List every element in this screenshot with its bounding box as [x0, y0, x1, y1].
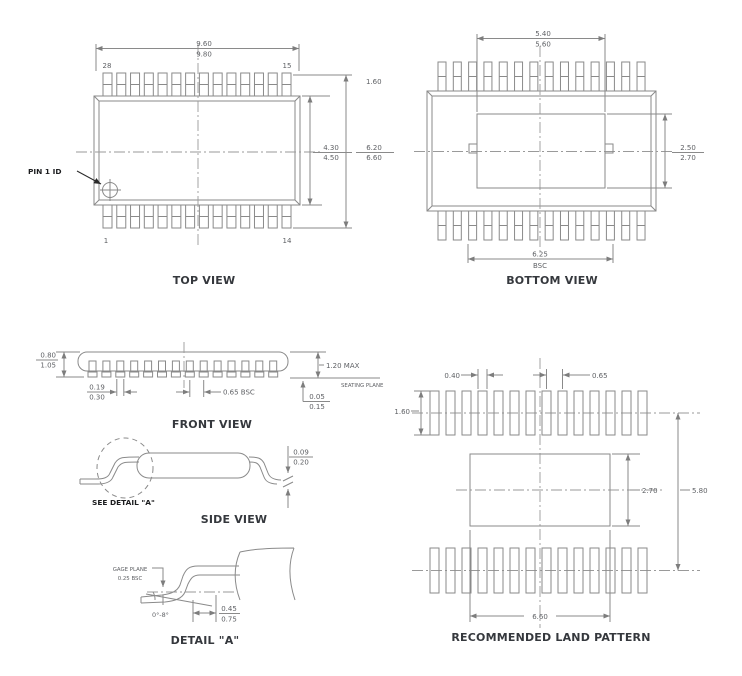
- front-view-leads: [88, 361, 278, 377]
- center-pad-width-dim: 6.60: [532, 613, 548, 621]
- pitch-extension-lines: [190, 380, 204, 397]
- standoff-dim-b: 0.15: [309, 403, 325, 411]
- span-dim-b: BSC: [533, 262, 547, 270]
- package-outline-drawing: PIN 1 ID 28 15 1 14 9.60 9.80 4.30 4.50 …: [0, 0, 742, 676]
- land-pad-width-extension-lines: [478, 369, 487, 389]
- package-body-inner: [99, 101, 295, 200]
- front-body-dim-b: 1.05: [40, 362, 56, 370]
- bottom-corner-bevels: [427, 91, 656, 211]
- foot-length-dim-a: 0.45: [221, 605, 237, 613]
- foot-length-dim-b: 0.75: [221, 616, 237, 624]
- pin1-id-label: PIN 1 ID: [28, 167, 62, 176]
- angle-dim: 0°-8°: [152, 611, 169, 619]
- land-overall-dim: 5.80: [692, 487, 708, 495]
- gage-plane-label: GAGE PLANE: [113, 567, 148, 573]
- land-pads-top-row: [430, 391, 647, 435]
- package-body-outline: [94, 96, 300, 205]
- gage-leader: [152, 568, 163, 578]
- lead-thickness-dim-a: 0.09: [293, 449, 309, 457]
- top-view: PIN 1 ID 28 15 1 14 9.60 9.80 4.30 4.50 …: [28, 40, 394, 287]
- land-pitch-dim: 0.65: [592, 372, 608, 380]
- front-body-dim-a: 0.80: [40, 352, 56, 360]
- pitch-dim: 0.65 BSC: [223, 389, 255, 397]
- front-view: 0.80 1.05 1.20 MAX SEATING PLANE 0.05 0.…: [36, 342, 384, 431]
- top-view-pins-upper: [103, 73, 291, 96]
- span-dim-a: 6.25: [532, 251, 548, 259]
- land-pads-bottom-row: [430, 548, 647, 593]
- width-dim-b: 9.80: [196, 51, 212, 59]
- pin-number-28: 28: [103, 62, 112, 70]
- body-height-dim-b: 4.50: [323, 154, 339, 162]
- pin1-leader-arrow: [77, 171, 101, 184]
- lead-length-dim: 1.60: [366, 78, 382, 86]
- body-corner-bevels: [94, 96, 300, 205]
- foot-length-extension-lines: [193, 595, 216, 622]
- gage-offset-dim: 0.25 BSC: [118, 576, 143, 582]
- top-view-title: TOP VIEW: [173, 274, 236, 287]
- lead-width-dim-b: 0.30: [89, 394, 105, 402]
- exposed-pad-outline: [477, 114, 605, 188]
- center-pad-height-dim: 2.70: [642, 487, 658, 495]
- detail-a-view: GAGE PLANE 0.25 BSC 0°-8° 0.45 0.75 DETA…: [113, 548, 295, 647]
- side-lead-left: [80, 457, 139, 484]
- pad-height-dim-a: 2.50: [680, 144, 696, 152]
- bottom-view-pins-upper: [438, 62, 645, 91]
- bottom-body-outline: [427, 91, 656, 211]
- pad-width-dim-b: 5.60: [535, 41, 551, 49]
- bottom-view-pins-lower: [438, 211, 645, 240]
- pad-height-extension-lines: [607, 114, 672, 188]
- drawing-canvas: PIN 1 ID 28 15 1 14 9.60 9.80 4.30 4.50 …: [0, 0, 742, 676]
- lead-thickness-dim-b: 0.20: [293, 459, 309, 467]
- front-view-title: FRONT VIEW: [172, 418, 252, 431]
- bottom-view-title: BOTTOM VIEW: [506, 274, 598, 287]
- break-marks: [283, 476, 293, 487]
- side-lead-right: [249, 457, 281, 484]
- foot-angle-line: [146, 594, 212, 606]
- land-pitch-extension-lines: [547, 369, 563, 389]
- pin1-id-cross: [100, 179, 121, 201]
- standoff-dim-a: 0.05: [309, 393, 325, 401]
- side-view-title: SIDE VIEW: [201, 513, 268, 526]
- land-pad-width-dim: 0.40: [444, 372, 460, 380]
- lead-width-dim-a: 0.19: [89, 384, 105, 392]
- land-pad-length-dim: 1.60: [394, 408, 410, 416]
- side-view: SEE DETAIL "A" 0.09 0.20 SIDE VIEW: [80, 438, 313, 526]
- overall-height-dim-a: 6.20: [366, 144, 382, 152]
- land-pattern-title: RECOMMENDED LAND PATTERN: [451, 631, 650, 644]
- pin-number-15: 15: [283, 62, 292, 70]
- seating-plane-label: SEATING PLANE: [341, 383, 384, 389]
- detail-a-title: DETAIL "A": [171, 634, 240, 647]
- pin-number-1: 1: [104, 237, 108, 245]
- max-height-dim: 1.20 MAX: [326, 362, 360, 370]
- detail-a-callout-circle: [97, 438, 153, 498]
- bottom-view: 5.40 5.60 2.50 2.70 6.25 BSC BOTTOM VIEW: [414, 30, 704, 287]
- overall-height-dim-b: 6.60: [366, 154, 382, 162]
- detail-lead-profile: [141, 566, 240, 603]
- pin-number-14: 14: [283, 237, 292, 245]
- side-body-outline: [137, 453, 250, 478]
- top-view-pins-lower: [103, 205, 291, 228]
- width-dim-a: 9.60: [196, 40, 212, 48]
- bottom-body-inner: [432, 96, 651, 206]
- detail-body-fragment: [235, 548, 295, 600]
- see-detail-a-label: SEE DETAIL "A": [92, 498, 155, 507]
- pad-width-dim-a: 5.40: [535, 30, 551, 38]
- lead-width-extension-lines: [117, 379, 124, 396]
- pad-height-dim-b: 2.70: [680, 154, 696, 162]
- body-height-dim-a: 4.30: [323, 144, 339, 152]
- land-pattern-view: 0.40 0.65 1.60 2.70 5.80 6.60 RECOMMENDE…: [394, 358, 707, 644]
